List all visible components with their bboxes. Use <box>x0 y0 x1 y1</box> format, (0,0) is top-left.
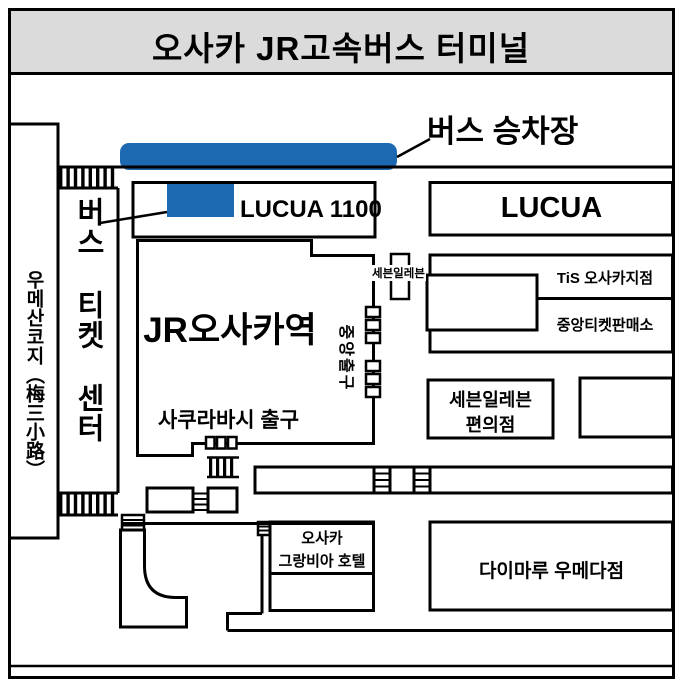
ticket-center-marker <box>167 184 234 217</box>
sakurabashi-exit-squares <box>206 437 237 449</box>
l-shaped-path <box>121 530 187 627</box>
bus-platform-leader-line <box>397 139 430 157</box>
corridor-stair-steps <box>374 474 430 487</box>
lucua-label: LUCUA <box>430 192 673 225</box>
central-ticket-office-label: 중앙티켓판매소 <box>537 314 673 335</box>
seven-eleven-store-label-line2: 편의점 <box>428 411 553 437</box>
page-title: 오사카 JR고속버스 터미널 <box>8 22 674 70</box>
bus-platform-label: 버스 승차장 <box>427 106 578 151</box>
umesankoji-road-label: 우메산코지（梅三小路） <box>14 270 52 538</box>
seven-eleven-kiosk-label: 세븐일레븐 <box>371 265 426 281</box>
tis-osaka-branch-label: TiS 오사카지점 <box>537 267 673 288</box>
hotel-granvia-label-line1: 오사카 <box>270 527 374 548</box>
jr-osaka-station-label: JR오사카역 <box>140 302 320 353</box>
walkway-corridor <box>255 467 673 493</box>
walkway-b-right <box>208 488 237 512</box>
lucua-1100-label: LUCUA 1100 <box>240 196 370 224</box>
walkway-b-left <box>147 488 193 512</box>
hotel-stairs-steps <box>258 527 270 531</box>
walkway-b-stairs <box>193 494 208 511</box>
hotel-granvia-label-line2: 그랑비아 호텔 <box>270 550 374 571</box>
tis-inner-hall <box>427 275 537 330</box>
seven-eleven-store-label-line1: 세븐일레븐 <box>428 386 553 412</box>
bus-ticket-center-label: 버스 티켓 센터 <box>69 197 107 475</box>
map-canvas: 오사카 JR고속버스 터미널 버스 승차장 우메산코지（梅三小路） 버스 티켓 … <box>0 0 685 687</box>
unlabeled-building <box>580 378 673 437</box>
hotel-approach-lines <box>228 535 263 631</box>
daimaru-umeda-label: 다이마루 우메다점 <box>430 556 673 583</box>
sakurabashi-exit-label: 사쿠라바시 출구 <box>158 404 299 434</box>
central-exit-label: 중앙출구 <box>336 317 360 399</box>
